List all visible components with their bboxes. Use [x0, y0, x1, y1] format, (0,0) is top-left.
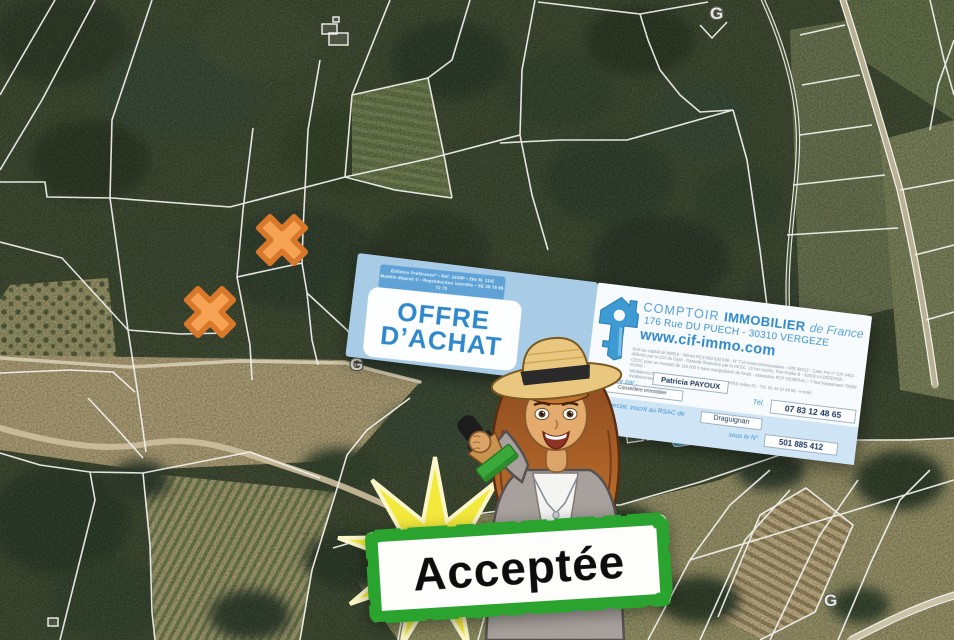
accepted-stamp: Acceptée — [363, 511, 674, 626]
social-map-graphic: G G G Éditions Préférence* • Réf. 3334P … — [0, 0, 954, 640]
stamp-label: Acceptée — [363, 511, 674, 626]
avatar-hand — [470, 432, 491, 453]
